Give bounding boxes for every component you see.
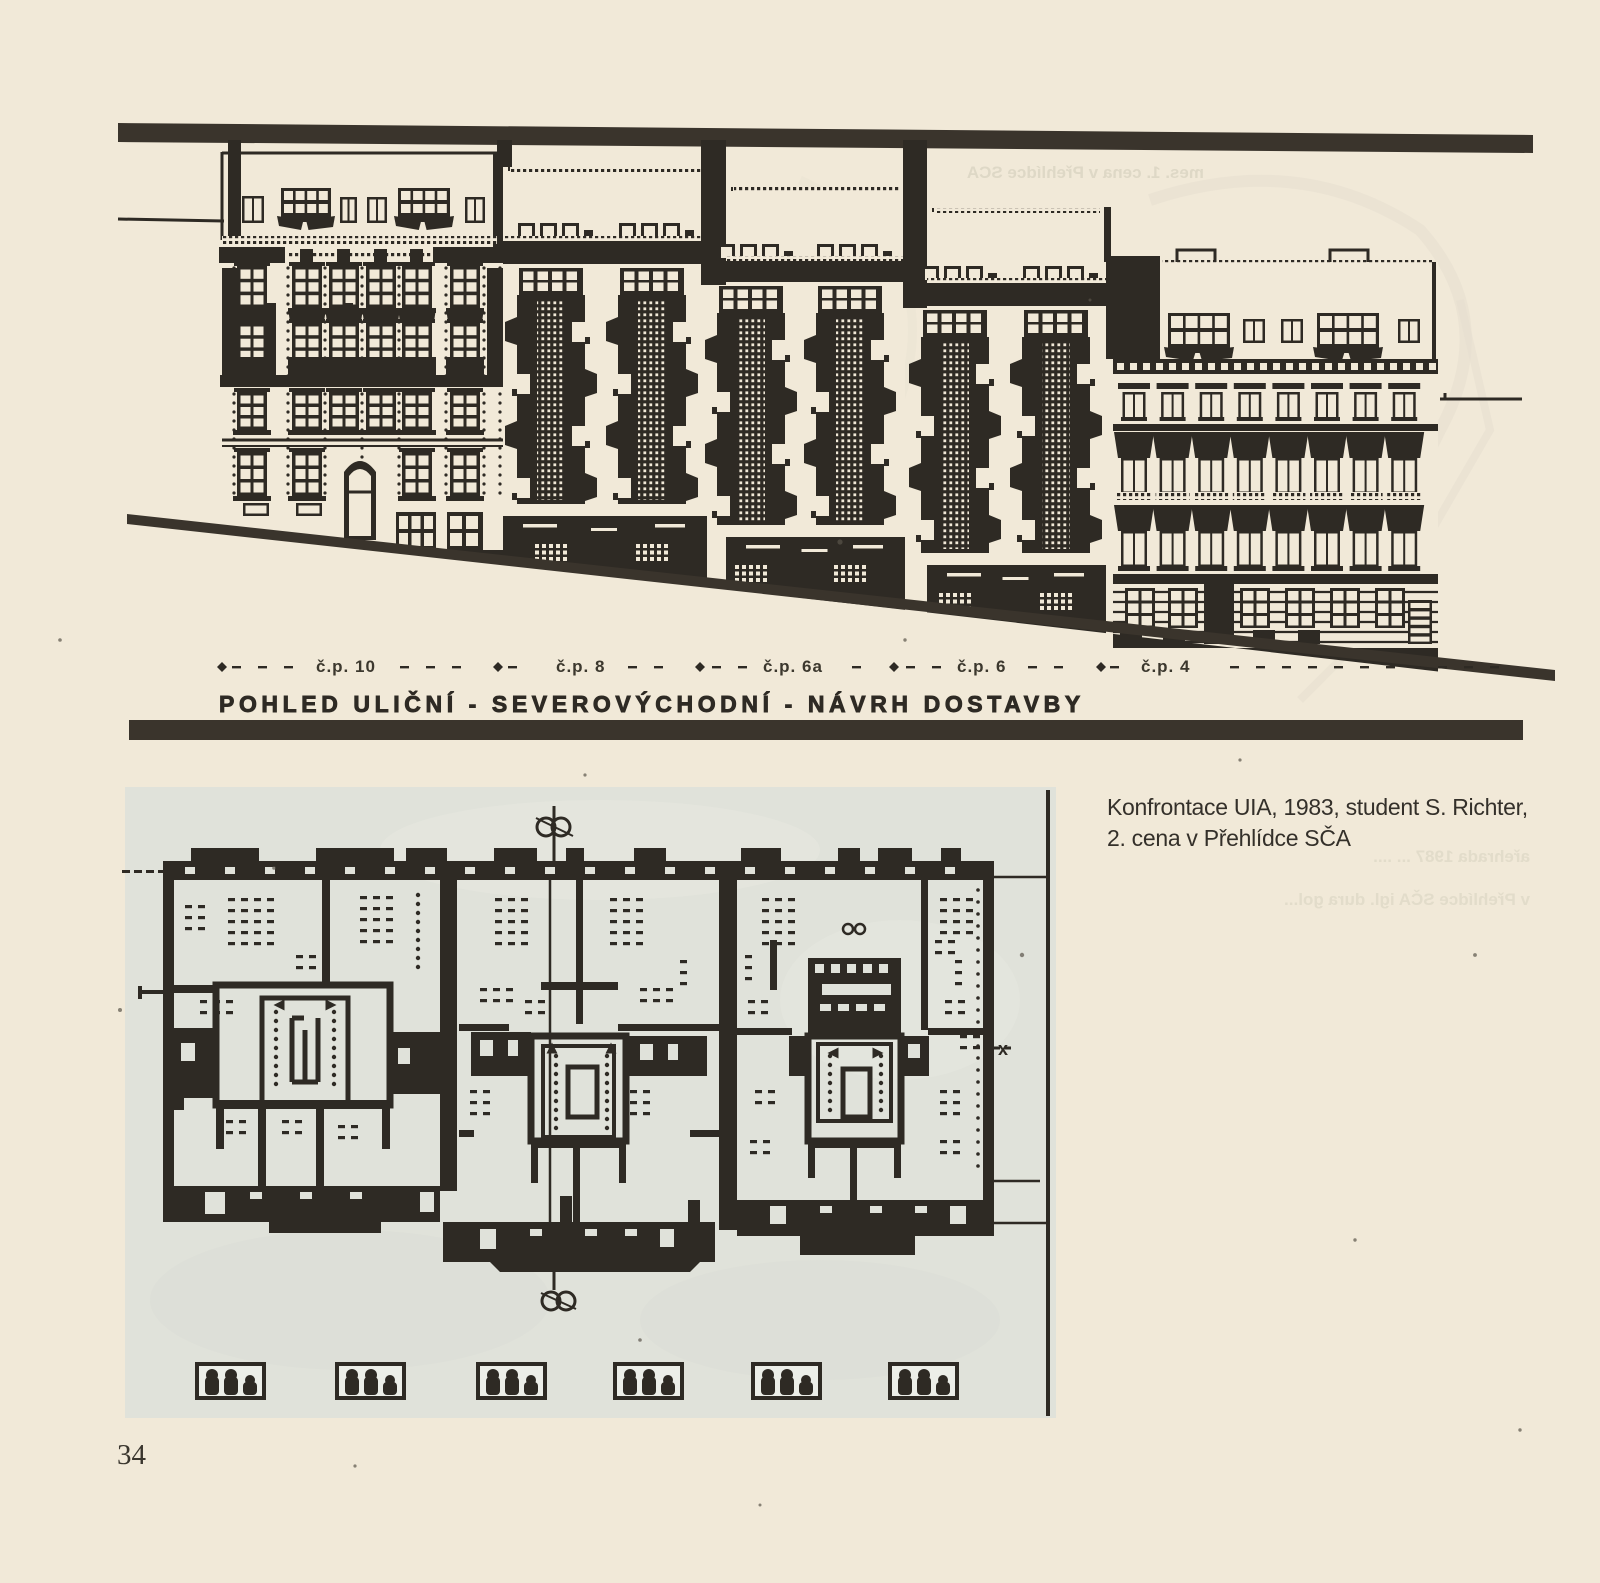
svg-text:Konfrontace UIA, 1983, student: Konfrontace UIA, 1983, student S. Richte… — [1107, 794, 1528, 820]
svg-text:v Přehlídce SČA igl. dura gol: v Přehlídce SČA igl. dura gol... — [1284, 890, 1530, 909]
svg-text:č.p. 8: č.p. 8 — [556, 657, 605, 676]
svg-text:34: 34 — [117, 1439, 147, 1471]
svg-text:2. cena v Přehlídce SČA: 2. cena v Přehlídce SČA — [1107, 824, 1352, 851]
svg-text:x: x — [998, 1039, 1008, 1059]
svg-text:mes. 1. cena v Přehlídce SCA: mes. 1. cena v Přehlídce SCA — [967, 163, 1204, 182]
svg-text:č.p. 6a: č.p. 6a — [763, 657, 823, 676]
svg-text:ařehrada 1987 ... ....: ařehrada 1987 ... .... — [1373, 847, 1530, 866]
svg-text:č.p. 6: č.p. 6 — [957, 657, 1006, 676]
svg-text:č.p. 10: č.p. 10 — [316, 657, 376, 676]
svg-text:č.p. 4: č.p. 4 — [1141, 657, 1190, 676]
svg-text:POHLED ULIČNÍ - SEVEROVÝCHODNÍ: POHLED ULIČNÍ - SEVEROVÝCHODNÍ - NÁVRH D… — [219, 690, 1085, 717]
